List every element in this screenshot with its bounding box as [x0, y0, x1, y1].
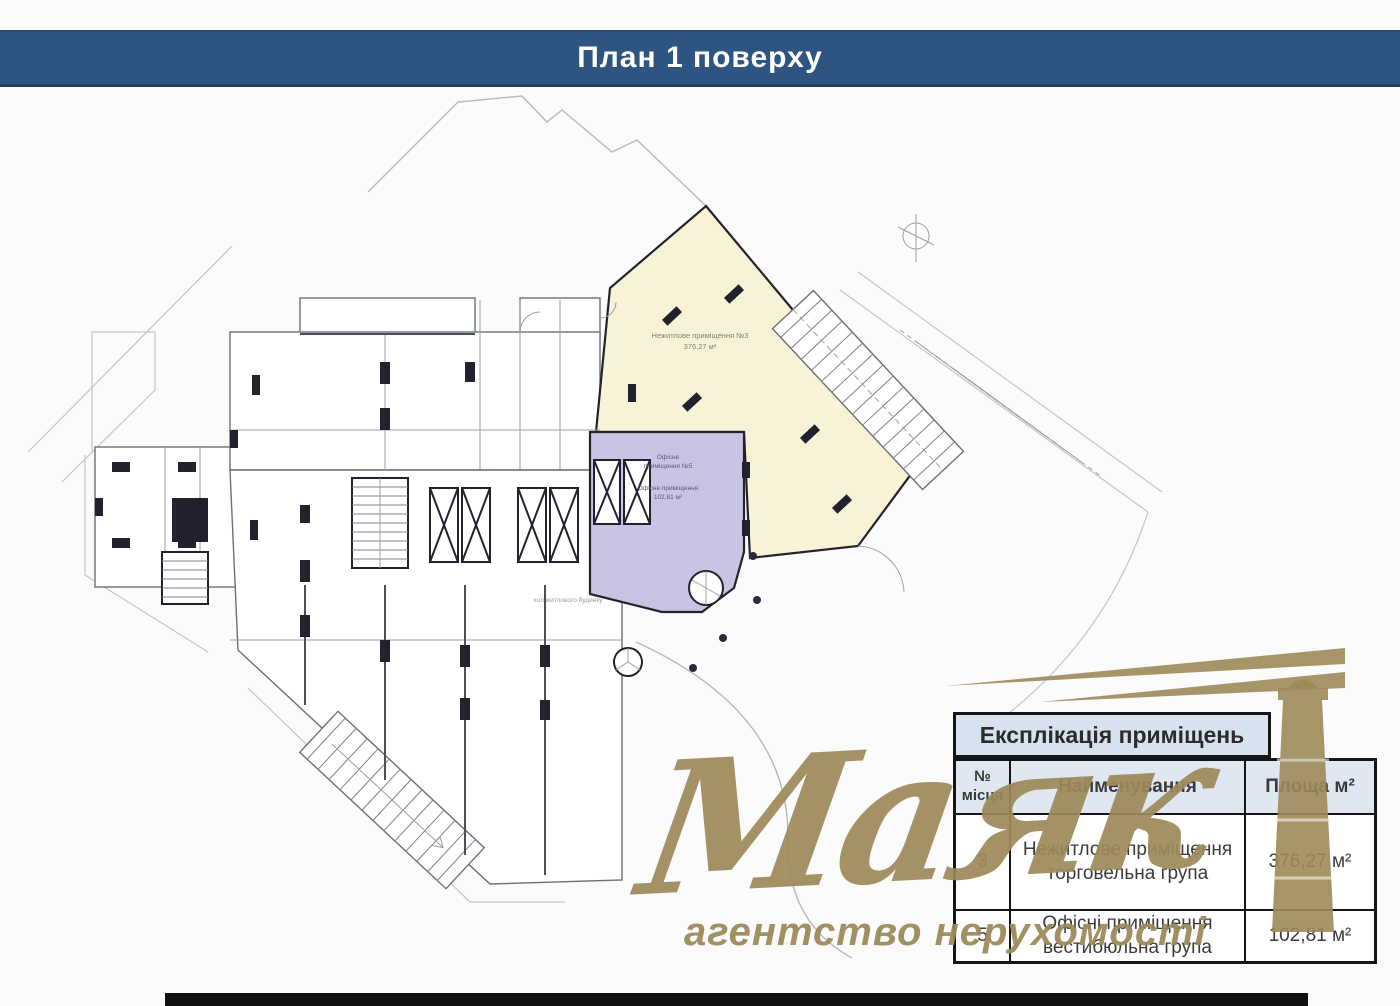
building-top-block — [300, 298, 475, 334]
page: Нежитлове приміщення №3 376,27 м² Офісне… — [0, 0, 1400, 1006]
col-header-name: Найменування — [1011, 761, 1246, 815]
building-central-band — [230, 332, 600, 470]
site-boundary-top — [368, 96, 706, 206]
table-row-2-name: Офісні приміщення вестибюльна група — [1011, 911, 1246, 961]
purple-area-label1-line1: Офісне — [657, 453, 680, 461]
site-line — [28, 246, 232, 452]
page-header: План 1 поверху — [0, 30, 1400, 87]
small-stair — [162, 552, 208, 604]
lobby-label: хол житлового будинку — [534, 596, 604, 604]
north-sign-icon — [898, 214, 934, 262]
col-header-num: № місця — [956, 761, 1011, 815]
table-row-2-area: 102,81 м² — [1246, 911, 1374, 961]
explication-table: № місця Найменування Площа м² 3 Нежитлов… — [953, 758, 1377, 964]
roundabout-circle — [614, 648, 642, 676]
table-row-1-name: Нежитлове приміщення торговельна група — [1011, 815, 1246, 911]
purple-area-label2-line1: Офісне приміщення — [638, 484, 699, 492]
table-row-1-area: 376,27 м² — [1246, 815, 1374, 911]
bottom-bar — [165, 993, 1308, 1006]
promenade-curve — [636, 642, 852, 958]
page-title: План 1 поверху — [577, 41, 823, 75]
dark-room — [172, 498, 208, 542]
stair-core — [352, 478, 408, 568]
yellow-area-label-area: 376,27 м² — [684, 342, 717, 351]
purple-area-label2-line2: 102,81 м² — [654, 494, 683, 501]
col-header-area: Площа м² — [1246, 761, 1374, 815]
yellow-area-label-name: Нежитлове приміщення №3 — [652, 331, 749, 340]
fountain-circle — [689, 571, 723, 605]
table-row-2-num: 5 — [956, 911, 1011, 961]
table-row-1-num: 3 — [956, 815, 1011, 911]
purple-area-label1-line2: приміщення №5 — [644, 462, 693, 470]
explication-table-title: Експлікація приміщень — [953, 712, 1271, 758]
